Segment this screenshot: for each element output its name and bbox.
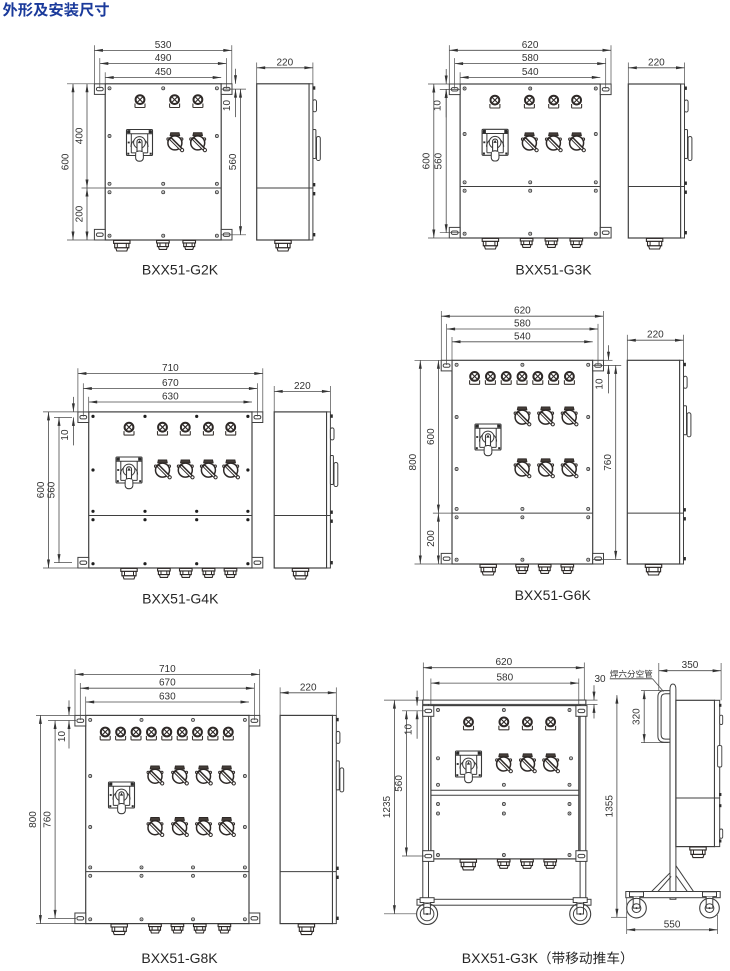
svg-text:400: 400	[75, 127, 86, 144]
svg-text:220: 220	[276, 57, 293, 68]
svg-text:BXX51-G8K: BXX51-G8K	[141, 950, 218, 966]
svg-text:560: 560	[434, 152, 445, 169]
svg-text:600: 600	[421, 152, 432, 169]
svg-text:1355: 1355	[604, 795, 615, 818]
svg-text:760: 760	[43, 811, 54, 828]
svg-text:580: 580	[496, 673, 513, 684]
svg-text:560: 560	[228, 153, 239, 170]
svg-text:490: 490	[155, 53, 172, 64]
svg-text:10: 10	[222, 100, 233, 112]
svg-text:560: 560	[47, 481, 58, 498]
svg-text:600: 600	[426, 428, 437, 445]
svg-text:BXX51-G3K: BXX51-G3K	[462, 950, 539, 966]
svg-text:220: 220	[648, 57, 665, 68]
svg-text:530: 530	[155, 40, 172, 51]
svg-text:800: 800	[408, 453, 419, 470]
svg-text:10: 10	[60, 429, 71, 441]
svg-text:600: 600	[36, 481, 47, 498]
svg-text:10: 10	[594, 378, 605, 390]
svg-text:580: 580	[514, 319, 531, 330]
svg-text:220: 220	[300, 682, 317, 693]
svg-text:710: 710	[159, 664, 176, 675]
svg-text:BXX51-G3K: BXX51-G3K	[515, 261, 592, 277]
svg-text:1235: 1235	[382, 795, 393, 818]
svg-text:540: 540	[522, 67, 539, 78]
svg-text:30: 30	[594, 674, 606, 685]
svg-text:560: 560	[394, 775, 405, 792]
svg-text:BXX51-G6K: BXX51-G6K	[515, 587, 592, 603]
svg-text:630: 630	[162, 392, 179, 403]
svg-text:670: 670	[159, 678, 176, 689]
svg-text:200: 200	[426, 530, 437, 547]
svg-text:10: 10	[433, 100, 444, 112]
svg-text:620: 620	[522, 40, 539, 51]
svg-text:670: 670	[162, 378, 179, 389]
svg-text:10: 10	[57, 731, 68, 743]
svg-text:450: 450	[155, 67, 172, 78]
svg-text:10: 10	[404, 724, 415, 736]
svg-text:220: 220	[294, 381, 311, 392]
svg-text:320: 320	[632, 708, 643, 725]
svg-text:580: 580	[522, 53, 539, 64]
svg-text:630: 630	[159, 692, 176, 703]
svg-text:710: 710	[162, 363, 179, 374]
svg-text:620: 620	[495, 657, 512, 668]
svg-text:540: 540	[514, 331, 531, 342]
svg-text:200: 200	[75, 205, 86, 222]
svg-text:350: 350	[682, 660, 699, 671]
svg-text:800: 800	[28, 811, 39, 828]
svg-text:BXX51-G4K: BXX51-G4K	[142, 591, 219, 607]
svg-text:220: 220	[647, 330, 664, 341]
svg-text:760: 760	[603, 454, 614, 471]
svg-text:620: 620	[514, 306, 531, 317]
svg-text:550: 550	[664, 919, 681, 930]
svg-text:600: 600	[61, 153, 72, 170]
svg-text:BXX51-G2K: BXX51-G2K	[142, 262, 219, 278]
